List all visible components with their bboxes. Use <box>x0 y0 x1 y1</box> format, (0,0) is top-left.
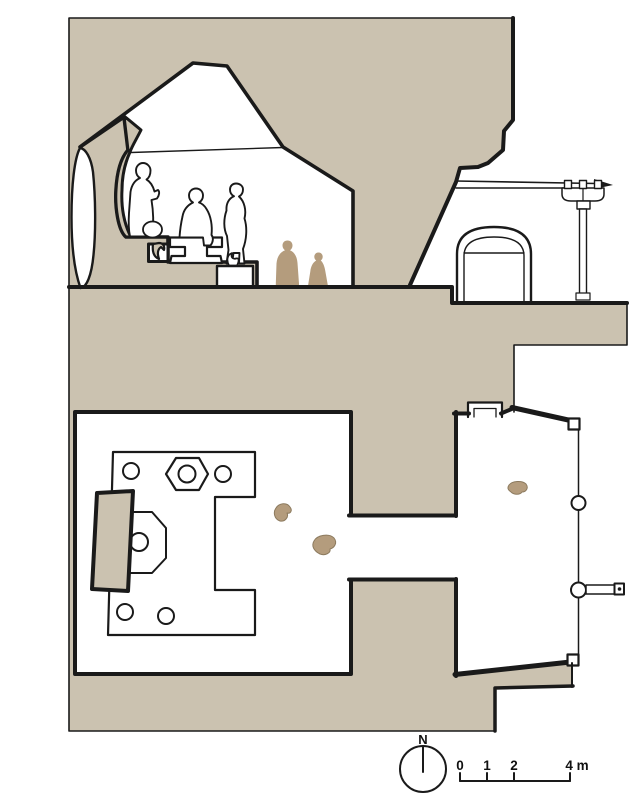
column-base-plan-1 <box>123 463 139 479</box>
column-base-plan-4 <box>158 608 174 624</box>
plan-beam-end-dot <box>618 587 622 591</box>
plan-beam <box>586 585 616 594</box>
facade-pilaster-top <box>569 419 580 430</box>
drawing-canvas: N 0 1 2 4 m <box>0 0 640 804</box>
compass: N <box>400 732 446 792</box>
left-slab <box>72 148 96 288</box>
scale-bar: 0 1 2 4 m <box>456 758 588 781</box>
column-base-plan-2 <box>215 466 231 482</box>
fallen-slab <box>92 491 133 591</box>
facade-column-base-2 <box>571 583 586 598</box>
bracket-block-right <box>595 181 602 189</box>
bracket-block-mid <box>580 181 587 189</box>
eave-upper-line <box>456 181 596 184</box>
porch-column <box>580 209 587 298</box>
arched-niche <box>457 227 531 301</box>
scale-label-4m: 4 m <box>565 758 588 773</box>
scale-label-0: 0 <box>456 758 464 773</box>
plan-view <box>75 402 624 676</box>
bracket-block-left <box>565 181 572 189</box>
scale-label-2: 2 <box>510 758 518 773</box>
statue-base-block <box>217 266 253 287</box>
compass-north-label: N <box>418 732 427 747</box>
column-base <box>576 293 590 300</box>
facade-column-base-1 <box>572 496 586 510</box>
cave-temple-drawing: N 0 1 2 4 m <box>0 0 640 804</box>
plan-corridor <box>347 518 458 578</box>
niche-arch-outer <box>457 227 531 301</box>
hexagonal-base-center <box>179 466 196 483</box>
boulder <box>143 222 162 238</box>
column-base-plan-3 <box>117 604 133 620</box>
plan-porch <box>456 402 579 675</box>
scale-label-1: 1 <box>483 758 491 773</box>
boundary-step-thick <box>495 686 573 731</box>
column-capital <box>577 201 590 209</box>
